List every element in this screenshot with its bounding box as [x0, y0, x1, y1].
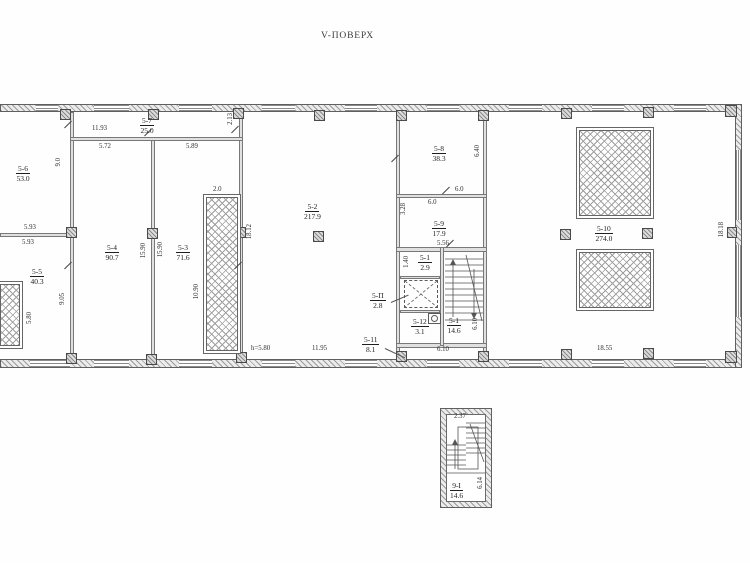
dimension-label: 5.93: [24, 224, 36, 231]
room-label-5-9: 5-9 17.9: [432, 219, 446, 239]
room-area: 40.3: [30, 277, 43, 286]
room-area: 17.9: [432, 229, 445, 238]
window: [509, 360, 542, 367]
room-area: 90.7: [105, 253, 118, 262]
room-label-5-5: 5-5 40.3: [30, 267, 44, 287]
dimension-label: 6.0: [455, 186, 464, 193]
partition-wall: [396, 194, 487, 198]
column: [642, 228, 653, 239]
partition-wall: [0, 233, 70, 237]
column: [727, 227, 737, 238]
partition-wall: [396, 112, 400, 359]
column: [561, 349, 572, 360]
shaft-hatched: [0, 281, 23, 349]
room-number: 5-1: [447, 316, 461, 326]
column: [396, 110, 407, 121]
partition-wall: [400, 276, 440, 279]
dimension-tick: [231, 126, 239, 134]
room-number: 5-1: [418, 253, 432, 263]
dimension-label: 15.90: [140, 243, 147, 258]
dimension-label: 6.0: [428, 199, 437, 206]
stairs-detail: [447, 415, 485, 479]
room-number: 5-5: [30, 267, 44, 277]
room-label-5-2: 5-2 217.9: [304, 202, 321, 222]
window: [674, 105, 706, 111]
room-area: 2.8: [373, 301, 382, 310]
column: [478, 351, 489, 362]
column: [725, 351, 737, 363]
room-label-5-1-small: 5-1 2.9: [418, 253, 432, 273]
partition-wall: [151, 139, 155, 359]
window: [592, 105, 624, 111]
dimension-label: h=5.80: [251, 345, 270, 352]
dimension-label: 18.18: [718, 222, 725, 237]
stairs-up-arrow-icon: [452, 439, 458, 445]
dimension-label: 6.40: [474, 145, 481, 157]
room-label-5-10: 5-10 274.0: [595, 224, 613, 244]
dimension-label: 11.93: [92, 125, 107, 132]
room-number: 5-7: [140, 116, 154, 126]
room-area: 71.6: [176, 253, 189, 262]
column: [643, 107, 654, 118]
room-number: 5-2: [305, 202, 319, 212]
shaft-hatched: [576, 249, 654, 311]
room-label-5-1: 5-1 14.6: [447, 316, 461, 336]
room-area: 53.0: [16, 174, 29, 183]
window: [592, 360, 624, 367]
dimension-label: 2.37: [454, 413, 466, 420]
shaft-hatch-fill: [579, 252, 651, 308]
room-number: 5-11: [362, 335, 379, 345]
dimension-label: 18.55: [597, 345, 612, 352]
room-label-5-lift: 5-П 2.8: [370, 291, 386, 311]
dimension-label: 15.90: [157, 242, 164, 257]
column: [66, 353, 77, 364]
dimension-label: 5.56: [437, 240, 449, 247]
room-area: 217.9: [304, 212, 321, 221]
page-title: V-ПОВЕРХ: [321, 31, 374, 41]
toilet-icon: [428, 313, 441, 324]
column: [60, 109, 71, 120]
stairs-up-arrow-icon: [450, 259, 456, 265]
room-label-9-I: 9-I 14.6: [450, 481, 463, 501]
dimension-label: 5.72: [99, 143, 111, 150]
column: [314, 110, 325, 121]
column: [146, 354, 157, 365]
room-area: 25.0: [140, 126, 153, 135]
dimension-label: 9.0: [55, 158, 62, 167]
window: [345, 105, 377, 111]
column: [561, 108, 572, 119]
dimension-label: 5.80: [26, 312, 33, 324]
dimension-label: 3.28: [400, 203, 407, 215]
window: [179, 360, 212, 367]
column: [643, 348, 654, 359]
column: [66, 227, 77, 238]
dimension-label: 6.10: [437, 346, 449, 353]
room-number: 5-6: [16, 164, 30, 174]
partition-wall: [70, 137, 243, 141]
window: [674, 360, 706, 367]
room-area: 14.6: [450, 491, 463, 500]
room-number: 5-П: [370, 291, 386, 301]
column: [560, 229, 571, 240]
room-label-5-7: 5-7 25.0: [140, 116, 154, 136]
dimension-label: 1.40: [403, 256, 410, 268]
shaft-hatched: [576, 127, 654, 219]
shaft-hatched: [203, 194, 241, 354]
room-label-5-8: 5-8 38.3: [432, 144, 446, 164]
shaft-hatch-fill: [0, 284, 20, 346]
partition-wall: [440, 247, 444, 346]
dimension-label: 9.05: [59, 293, 66, 305]
window: [509, 105, 542, 111]
room-label-5-11: 5-11 8.1: [362, 335, 379, 355]
window: [736, 150, 741, 220]
room-number: 5-9: [432, 219, 446, 229]
dimension-label: 6.10: [472, 318, 479, 330]
column: [725, 105, 737, 117]
room-area: 8.1: [366, 345, 375, 354]
column: [478, 110, 489, 121]
column: [233, 108, 244, 119]
window: [179, 105, 212, 111]
window: [262, 105, 295, 111]
window: [262, 360, 295, 367]
dimension-label: 10.90: [193, 284, 200, 299]
room-label-5-4: 5-4 90.7: [105, 243, 119, 263]
elevator-cross-icon: [404, 280, 438, 308]
dimension-label: 2.0: [213, 186, 222, 193]
room-number: 5-12: [411, 317, 429, 327]
room-label-5-6: 5-6 53.0: [16, 164, 30, 184]
dimension-label: 11.95: [312, 345, 327, 352]
room-area: 274.0: [595, 234, 612, 243]
dimension-label: 5.93: [22, 239, 34, 246]
dimension-label: 6.14: [477, 477, 484, 489]
shaft-hatch-fill: [579, 130, 651, 216]
partition-wall: [483, 112, 487, 359]
room-number: 5-4: [105, 243, 119, 253]
shaft-hatch-fill: [206, 197, 238, 351]
window: [36, 105, 58, 111]
window: [345, 360, 377, 367]
window: [427, 360, 459, 367]
room-label-5-3: 5-3 71.6: [176, 243, 190, 263]
room-number: 5-10: [595, 224, 613, 234]
room-label-5-12: 5-12 3.1: [411, 317, 429, 337]
dimension-label: 5.89: [186, 143, 198, 150]
column: [147, 228, 158, 239]
window: [30, 360, 70, 367]
window: [94, 360, 129, 367]
dimension-label: 18.12: [246, 224, 253, 239]
room-number: 5-8: [432, 144, 446, 154]
room-area: 2.9: [420, 263, 429, 272]
room-number: 9-I: [450, 481, 463, 491]
floor-plan-canvas: V-ПОВЕРХ: [0, 0, 750, 563]
room-area: 38.3: [432, 154, 445, 163]
window: [736, 245, 741, 317]
room-area: 14.6: [447, 326, 460, 335]
column: [313, 231, 324, 242]
room-area: 3.1: [415, 327, 424, 336]
dimension-label: 2.13: [227, 113, 234, 125]
room-number: 5-3: [176, 243, 190, 253]
window: [427, 105, 459, 111]
window: [94, 105, 129, 111]
